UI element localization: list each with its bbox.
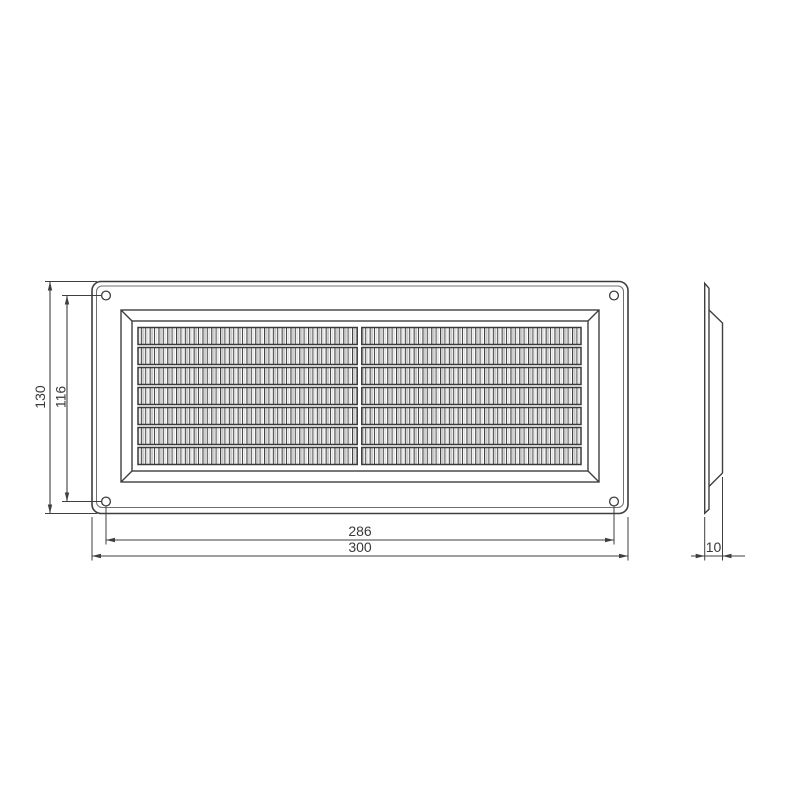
slat-row-segment bbox=[362, 428, 581, 445]
slat-row-segment bbox=[138, 388, 357, 405]
slat-row-segment bbox=[138, 368, 357, 385]
slat-row-segment bbox=[138, 408, 357, 425]
slat-row-segment bbox=[138, 448, 357, 465]
slat-row-segment bbox=[362, 388, 581, 405]
slat-row-segment bbox=[138, 348, 357, 365]
screw-hole-top-left bbox=[102, 291, 111, 300]
dimension-label-286: 286 bbox=[348, 523, 372, 539]
arrowhead-130-top bbox=[48, 282, 52, 291]
arrowhead-300-left bbox=[92, 554, 101, 558]
slat-row-segment bbox=[362, 368, 581, 385]
technical-drawing-page: 130 116 286 300 bbox=[0, 0, 800, 800]
screw-hole-bottom-left bbox=[102, 497, 111, 506]
screw-hole-top-right bbox=[610, 291, 619, 300]
arrowhead-130-bottom bbox=[48, 505, 52, 514]
side-faceplate bbox=[705, 283, 709, 513]
dimension-label-300: 300 bbox=[348, 539, 372, 555]
arrowhead-10-left bbox=[696, 554, 705, 558]
arrowhead-300-right bbox=[619, 554, 628, 558]
vent-grille-drawing: 130 116 286 300 bbox=[0, 0, 800, 800]
dimension-label-10: 10 bbox=[706, 539, 722, 555]
slat-row-segment bbox=[362, 328, 581, 345]
slat-row-segment bbox=[362, 448, 581, 465]
dimension-depth: 10 bbox=[691, 477, 745, 561]
slat-row-segment bbox=[362, 348, 581, 365]
arrowhead-116-top bbox=[65, 296, 69, 305]
arrowhead-116-bottom bbox=[65, 493, 69, 502]
dimension-label-130: 130 bbox=[32, 385, 48, 409]
slat-row-segment bbox=[138, 328, 357, 345]
slat-row-segment bbox=[138, 428, 357, 445]
side-spigot-profile bbox=[709, 310, 723, 487]
arrowhead-286-right bbox=[605, 538, 614, 542]
slat-row-segment bbox=[362, 408, 581, 425]
arrowhead-10-right bbox=[723, 554, 732, 558]
side-view bbox=[705, 283, 723, 513]
arrowhead-286-left bbox=[106, 538, 115, 542]
front-view bbox=[92, 282, 628, 514]
dimension-label-116: 116 bbox=[53, 386, 69, 409]
screw-hole-bottom-right bbox=[610, 497, 619, 506]
